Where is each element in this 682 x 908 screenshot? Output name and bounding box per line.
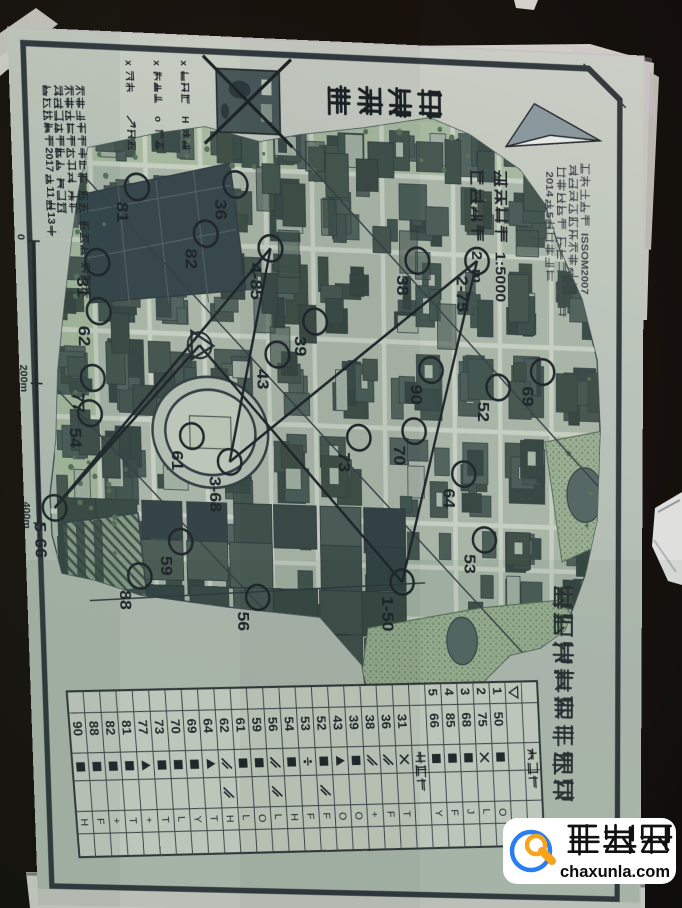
svg-text:chaxunla.com: chaxunla.com — [560, 863, 670, 881]
